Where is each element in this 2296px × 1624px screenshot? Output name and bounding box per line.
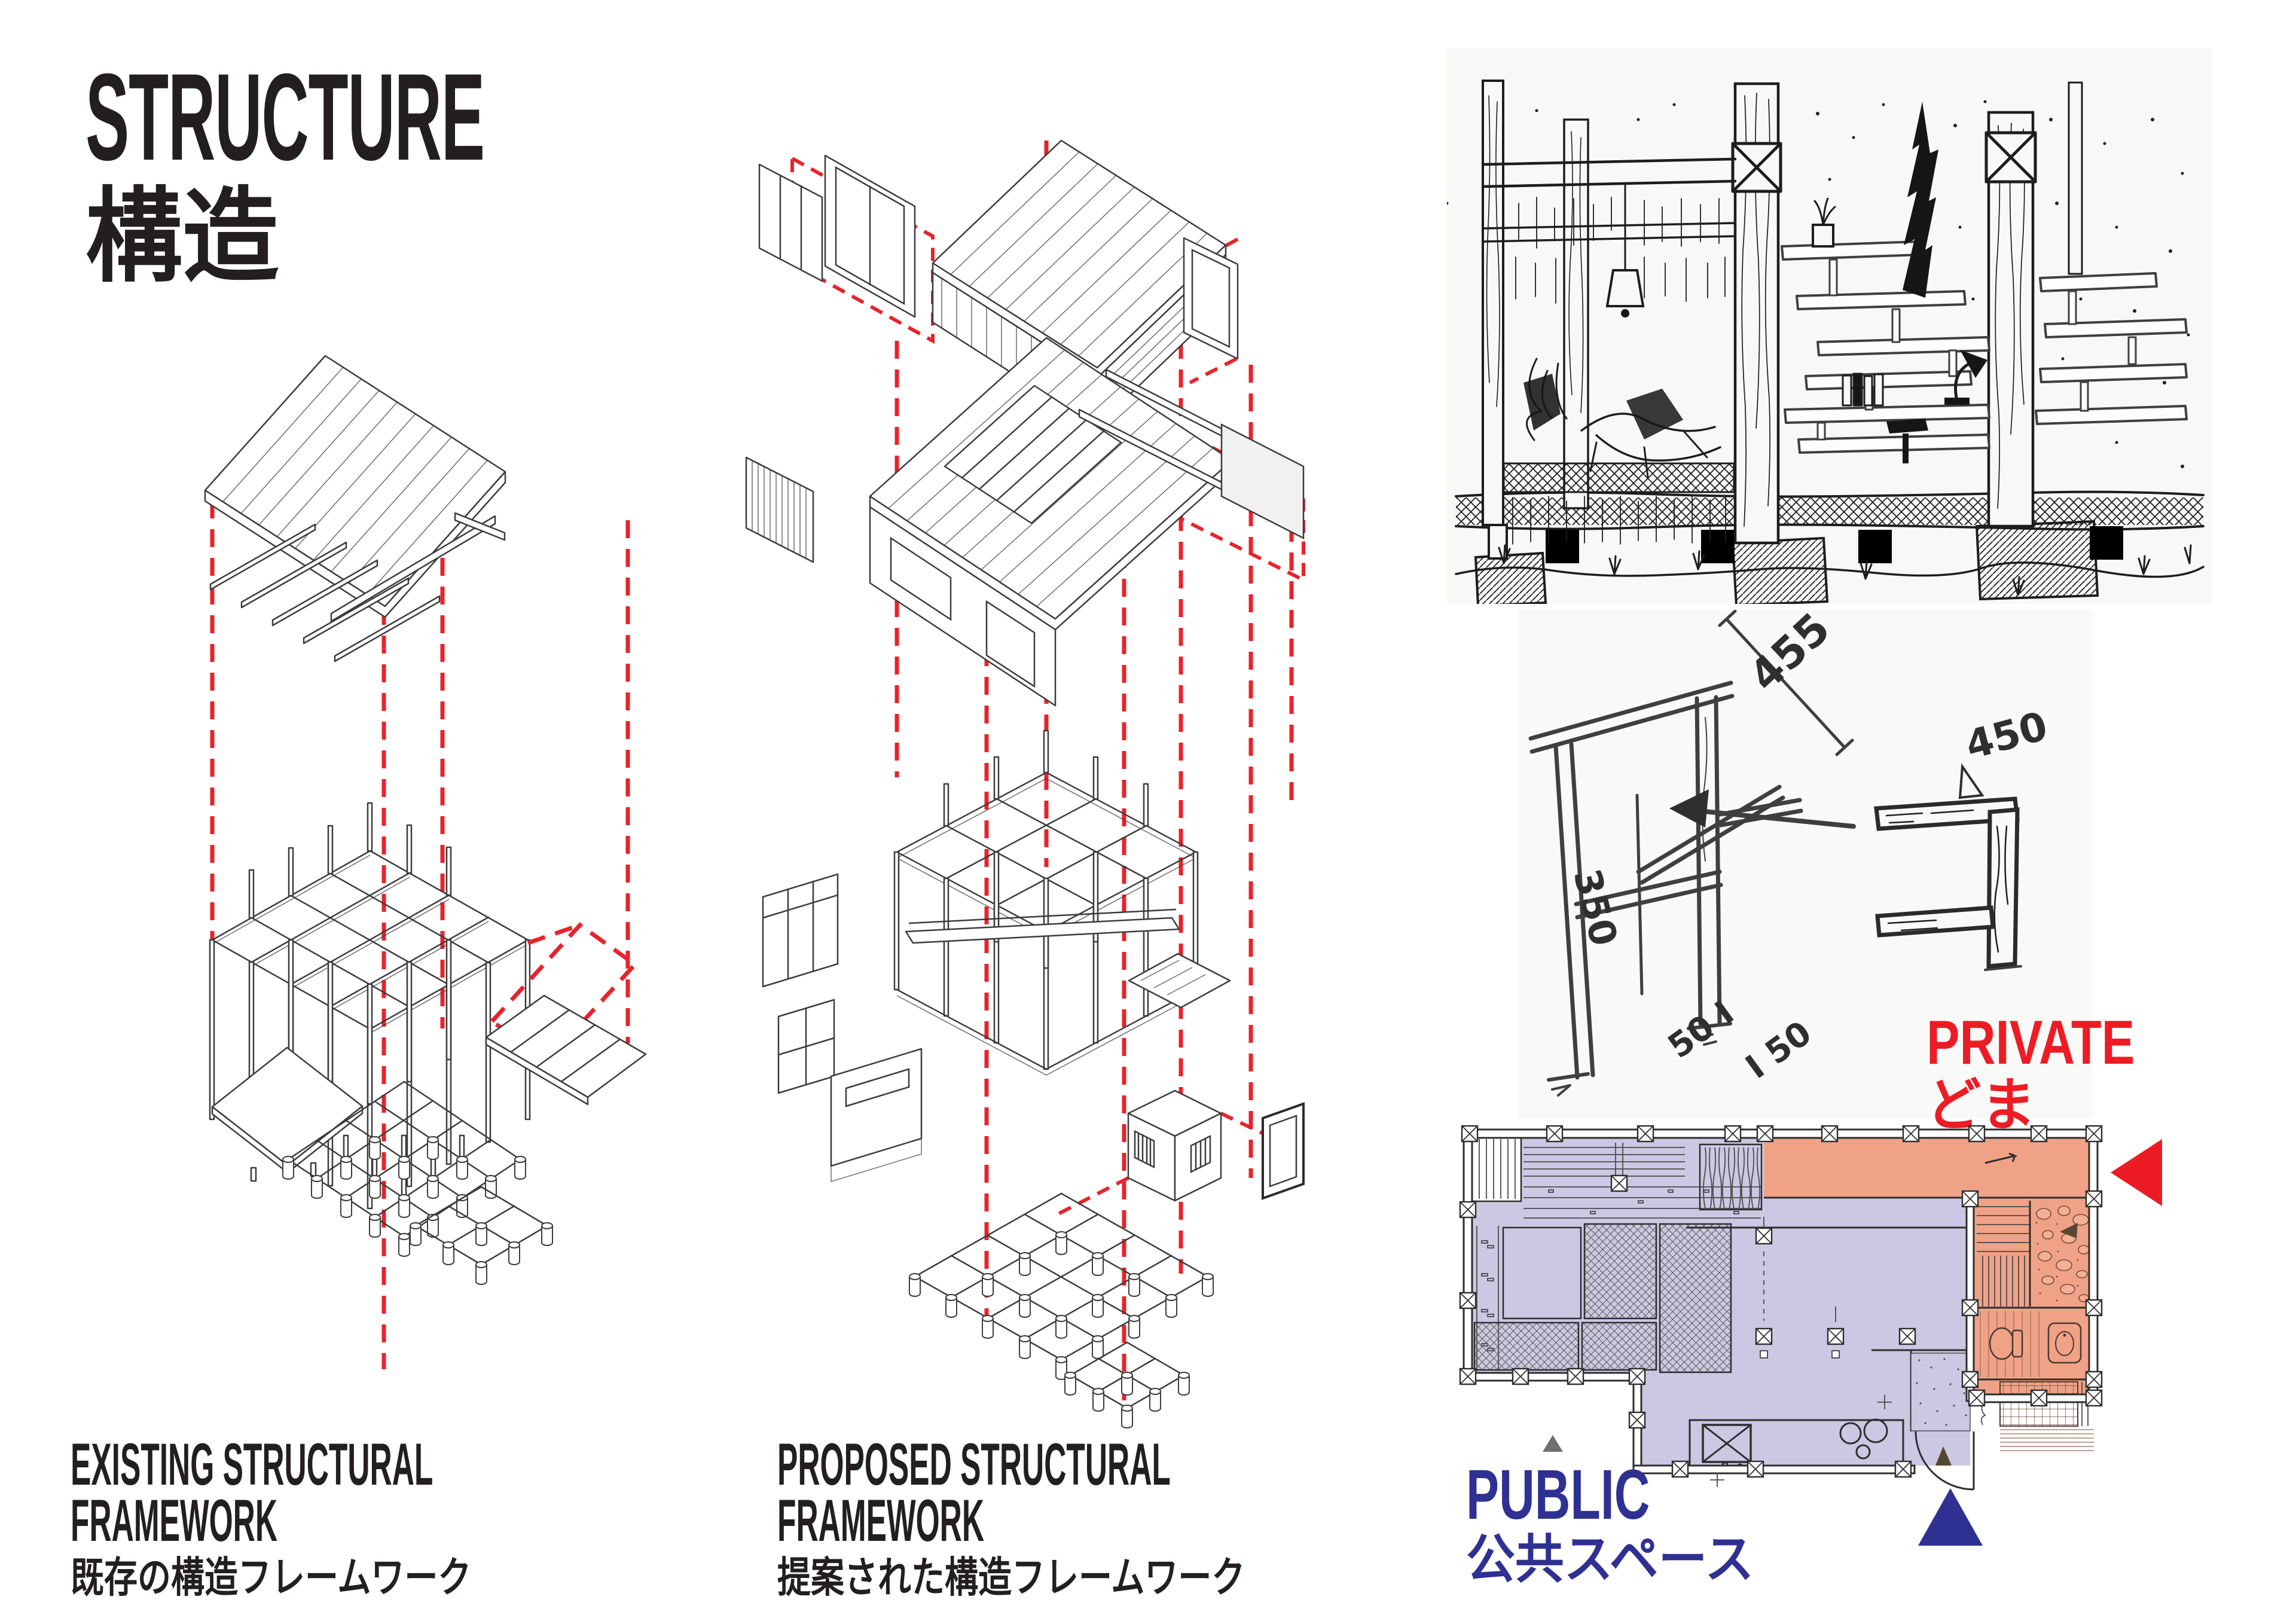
interior-structure-sketch [1447,48,2212,604]
private-label-en: PRIVATE [1926,1013,2135,1073]
foundation-subgrid [410,1187,552,1284]
vent-box [1128,1091,1221,1201]
closet-hatched-2 [1660,1224,1731,1372]
door-panel-right [1263,1104,1303,1198]
foundation-grid [909,1193,1213,1428]
axon-proposed-framework [735,84,1315,1453]
louver-panel [746,457,813,562]
toilet-icon [1990,1328,2014,1359]
public-arrow-triangle-icon [1918,1488,1983,1546]
mat-hatched [1474,1323,1578,1370]
washbasin-icon [2048,1323,2081,1363]
private-area-fill [1764,1138,2090,1198]
genkan [1911,1353,1970,1431]
caption-proposed-line2: FRAMEWORK [777,1492,984,1549]
mat-hatched-2 [1582,1323,1656,1370]
caption-existing-line1: EXISTING STRUCTURAL [71,1436,433,1492]
caption-existing-line2: FRAMEWORK [71,1492,277,1549]
entry-marker-triangle-icon [1543,1435,1563,1452]
page-title: STRUCTURE 構造 [86,57,838,291]
engawa-porch [1472,1137,1521,1201]
title-en: STRUCTURE [86,57,484,177]
detached-wall-panels-top [759,155,915,317]
caption-proposed-line1: PROPOSED STRUCTURAL [777,1436,1171,1492]
caption-existing-jp: 既存の構造フレームワーク [71,1549,471,1606]
axon-existing-framework [161,326,652,1402]
caption-proposed-jp: 提案された構造フレームワーク [777,1549,1245,1606]
title-jp: 構造 [86,183,279,291]
closet-hatched [1584,1224,1656,1318]
caption-proposed: PROPOSED STRUCTURAL FRAMEWORK 提案された構造フレー… [777,1436,1534,1606]
private-label: PRIVATE どま [1926,1013,2187,1138]
poster-board: STRUCTURE 構造 [0,0,2296,1624]
stair-piece [486,925,646,1104]
caption-existing: EXISTING STRUCTURAL FRAMEWORK 既存の構造フレームワ… [71,1436,768,1606]
private-arrow-triangle-icon [2111,1139,2162,1206]
